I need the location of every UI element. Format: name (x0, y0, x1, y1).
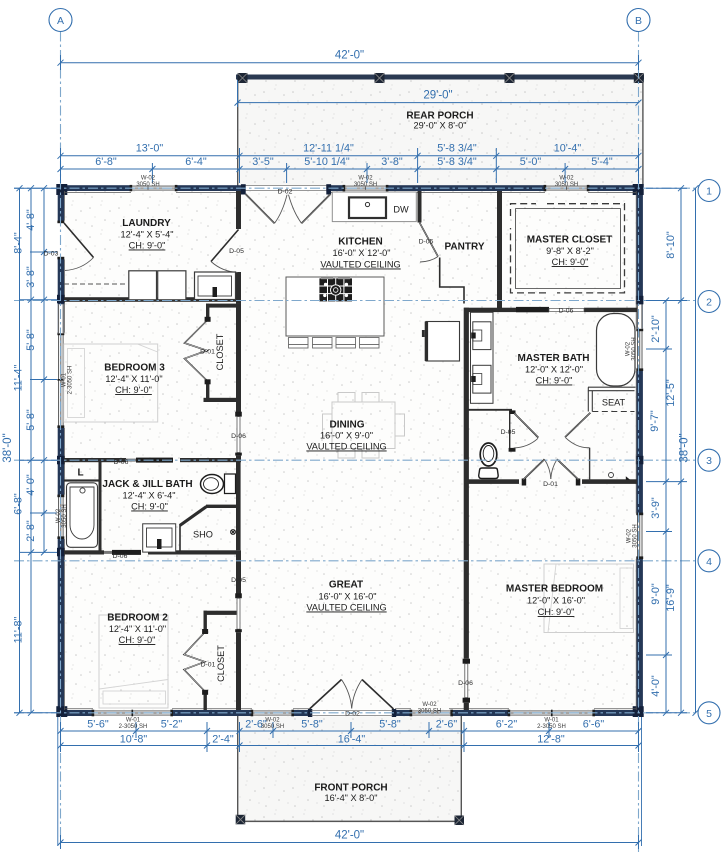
svg-text:MASTER CLOSET: MASTER CLOSET (527, 235, 613, 246)
svg-text:3050 SH: 3050 SH (261, 724, 284, 730)
svg-text:10'-4": 10'-4" (554, 143, 582, 155)
svg-text:16'-0" X 16'-0": 16'-0" X 16'-0" (318, 592, 376, 602)
svg-text:CLOSET: CLOSET (216, 645, 226, 682)
svg-text:16'-0" X 12'-0": 16'-0" X 12'-0" (332, 248, 390, 258)
svg-text:42'-0": 42'-0" (335, 830, 364, 842)
svg-text:12'-4" X 6'-4": 12'-4" X 6'-4" (123, 491, 176, 501)
svg-text:D-06: D-06 (559, 308, 574, 315)
svg-text:12'-4" X 5'-4": 12'-4" X 5'-4" (121, 230, 174, 240)
svg-text:16'-0" X 9'-0": 16'-0" X 9'-0" (320, 431, 373, 441)
svg-text:W-02: W-02 (358, 176, 373, 182)
svg-text:16'-9": 16'-9" (665, 584, 677, 612)
svg-text:38'-0": 38'-0" (679, 433, 691, 462)
svg-text:3050 SH: 3050 SH (632, 337, 638, 360)
svg-text:2'-6": 2'-6" (436, 719, 458, 731)
svg-text:GREAT: GREAT (329, 580, 363, 591)
svg-text:12'-5": 12'-5" (665, 379, 677, 407)
svg-text:D-02: D-02 (345, 711, 360, 718)
svg-text:VAULTED CEILING: VAULTED CEILING (306, 442, 386, 452)
svg-text:2-3050 SH: 2-3050 SH (68, 366, 74, 395)
svg-text:3: 3 (706, 455, 712, 467)
svg-text:5'-2": 5'-2" (161, 719, 183, 731)
svg-text:9'-7": 9'-7" (649, 410, 661, 432)
svg-text:5'-8 3/4": 5'-8 3/4" (437, 143, 477, 155)
svg-text:5: 5 (706, 708, 712, 720)
svg-text:9'-0": 9'-0" (650, 583, 662, 605)
svg-text:3050 SH: 3050 SH (418, 709, 441, 715)
svg-text:6'-8": 6'-8" (13, 493, 25, 515)
svg-text:W-01: W-01 (544, 718, 559, 724)
svg-text:5'-0": 5'-0" (520, 156, 542, 168)
svg-text:W-02: W-02 (265, 718, 280, 724)
svg-text:W-02: W-02 (141, 176, 156, 182)
svg-text:6'-4": 6'-4" (185, 156, 207, 168)
svg-text:29'-0": 29'-0" (423, 90, 452, 102)
svg-text:BEDROOM 3: BEDROOM 3 (104, 363, 165, 374)
svg-text:BEDROOM 2: BEDROOM 2 (107, 613, 168, 624)
svg-text:D-06: D-06 (114, 459, 129, 466)
svg-text:A: A (57, 15, 64, 27)
svg-text:D-01: D-01 (543, 481, 558, 488)
svg-text:MASTER BEDROOM: MASTER BEDROOM (506, 584, 603, 595)
svg-text:8'-4": 8'-4" (13, 232, 25, 254)
svg-text:2'-10": 2'-10" (650, 315, 662, 343)
svg-text:D-05: D-05 (501, 429, 516, 436)
svg-text:D-05: D-05 (231, 577, 246, 584)
svg-text:2: 2 (706, 297, 712, 309)
svg-text:12'-0" X 16'-0": 12'-0" X 16'-0" (527, 596, 585, 606)
svg-text:8'-10": 8'-10" (665, 231, 677, 259)
svg-text:29'-0" X 8'-0": 29'-0" X 8'-0" (414, 121, 467, 131)
svg-text:6'-8": 6'-8" (95, 156, 117, 168)
svg-text:KITCHEN: KITCHEN (338, 237, 382, 248)
svg-text:MASTER BATH: MASTER BATH (517, 353, 589, 364)
svg-text:2-3050 SH: 2-3050 SH (537, 724, 566, 730)
svg-text:5'-4": 5'-4" (591, 156, 613, 168)
svg-text:3050 SH: 3050 SH (62, 504, 68, 527)
svg-text:38'-0": 38'-0" (2, 433, 14, 462)
svg-text:13'-0": 13'-0" (136, 143, 164, 155)
svg-text:CH: 9'-0": CH: 9'-0" (129, 241, 166, 251)
svg-text:JACK & JILL BATH: JACK & JILL BATH (102, 479, 192, 490)
svg-text:CH: 9'-0": CH: 9'-0" (119, 635, 156, 645)
svg-text:10'-8": 10'-8" (120, 733, 148, 745)
svg-text:12'-4" X 11'-0": 12'-4" X 11'-0" (109, 624, 166, 634)
svg-text:3050 SH: 3050 SH (633, 524, 639, 547)
svg-text:D-05: D-05 (229, 248, 244, 255)
svg-text:3'-5": 3'-5" (252, 156, 274, 168)
svg-text:D-01: D-01 (200, 349, 215, 356)
svg-text:5'-10 1/4": 5'-10 1/4" (304, 156, 350, 168)
svg-text:CH: 9'-0": CH: 9'-0" (115, 385, 152, 395)
svg-text:W-01: W-01 (126, 718, 141, 724)
svg-text:VAULTED CEILING: VAULTED CEILING (306, 603, 386, 613)
svg-text:11'-4": 11'-4" (13, 364, 25, 391)
svg-text:16'-4": 16'-4" (338, 733, 366, 745)
svg-text:CH: 9'-0": CH: 9'-0" (131, 502, 168, 512)
svg-text:D-03: D-03 (44, 251, 59, 258)
svg-text:11'-8": 11'-8" (13, 616, 25, 643)
svg-text:CH: 9'-0": CH: 9'-0" (536, 376, 573, 386)
svg-text:42'-0": 42'-0" (335, 50, 364, 62)
svg-text:D-06: D-06 (231, 433, 246, 440)
svg-text:12'-4" X 11'-0": 12'-4" X 11'-0" (105, 374, 162, 384)
svg-text:5'-8 3/4": 5'-8 3/4" (437, 156, 477, 168)
svg-text:12'-11 1/4": 12'-11 1/4" (303, 143, 354, 155)
svg-text:2-3050 SH: 2-3050 SH (119, 724, 148, 730)
svg-text:2'-4": 2'-4" (212, 733, 234, 745)
svg-text:12'-0" X 12'-0": 12'-0" X 12'-0" (525, 365, 583, 375)
svg-text:6'-6": 6'-6" (583, 719, 605, 731)
svg-text:DW: DW (393, 204, 409, 214)
svg-text:D-06: D-06 (113, 553, 128, 560)
svg-text:PANTRY: PANTRY (445, 242, 485, 253)
svg-text:L: L (77, 468, 83, 479)
svg-text:DINING: DINING (330, 420, 365, 431)
svg-text:9'-8" X 8'-2": 9'-8" X 8'-2" (546, 246, 594, 256)
svg-text:CH: 9'-0": CH: 9'-0" (538, 607, 575, 617)
svg-text:1: 1 (706, 186, 712, 198)
svg-text:VAULTED CEILING: VAULTED CEILING (320, 260, 400, 270)
svg-text:W-02: W-02 (559, 176, 574, 182)
svg-text:CLOSET: CLOSET (215, 333, 225, 370)
svg-text:B: B (635, 15, 642, 27)
svg-text:LAUNDRY: LAUNDRY (122, 218, 171, 229)
svg-text:12'-8": 12'-8" (537, 733, 565, 745)
svg-text:D-02: D-02 (278, 189, 293, 196)
svg-text:16'-4" X 8'-0": 16'-4" X 8'-0" (325, 793, 378, 803)
svg-text:6'-2": 6'-2" (496, 719, 518, 731)
svg-text:5'-8": 5'-8" (301, 719, 323, 731)
svg-text:SEAT: SEAT (602, 398, 626, 408)
svg-text:D-06: D-06 (458, 680, 473, 687)
svg-text:4: 4 (706, 556, 712, 568)
svg-text:D-05: D-05 (419, 239, 434, 246)
svg-text:CH: 9'-0": CH: 9'-0" (552, 257, 589, 267)
svg-text:4'-0": 4'-0" (650, 675, 662, 697)
svg-text:SHO: SHO (193, 530, 213, 540)
svg-text:5'-6": 5'-6" (87, 719, 109, 731)
svg-text:W-02: W-02 (422, 702, 437, 708)
svg-text:FRONT PORCH: FRONT PORCH (314, 783, 387, 794)
svg-text:D-01: D-01 (201, 662, 216, 669)
svg-text:5'-8": 5'-8" (379, 719, 401, 731)
svg-text:3'-8": 3'-8" (381, 156, 403, 168)
svg-text:3'-9": 3'-9" (650, 497, 662, 519)
